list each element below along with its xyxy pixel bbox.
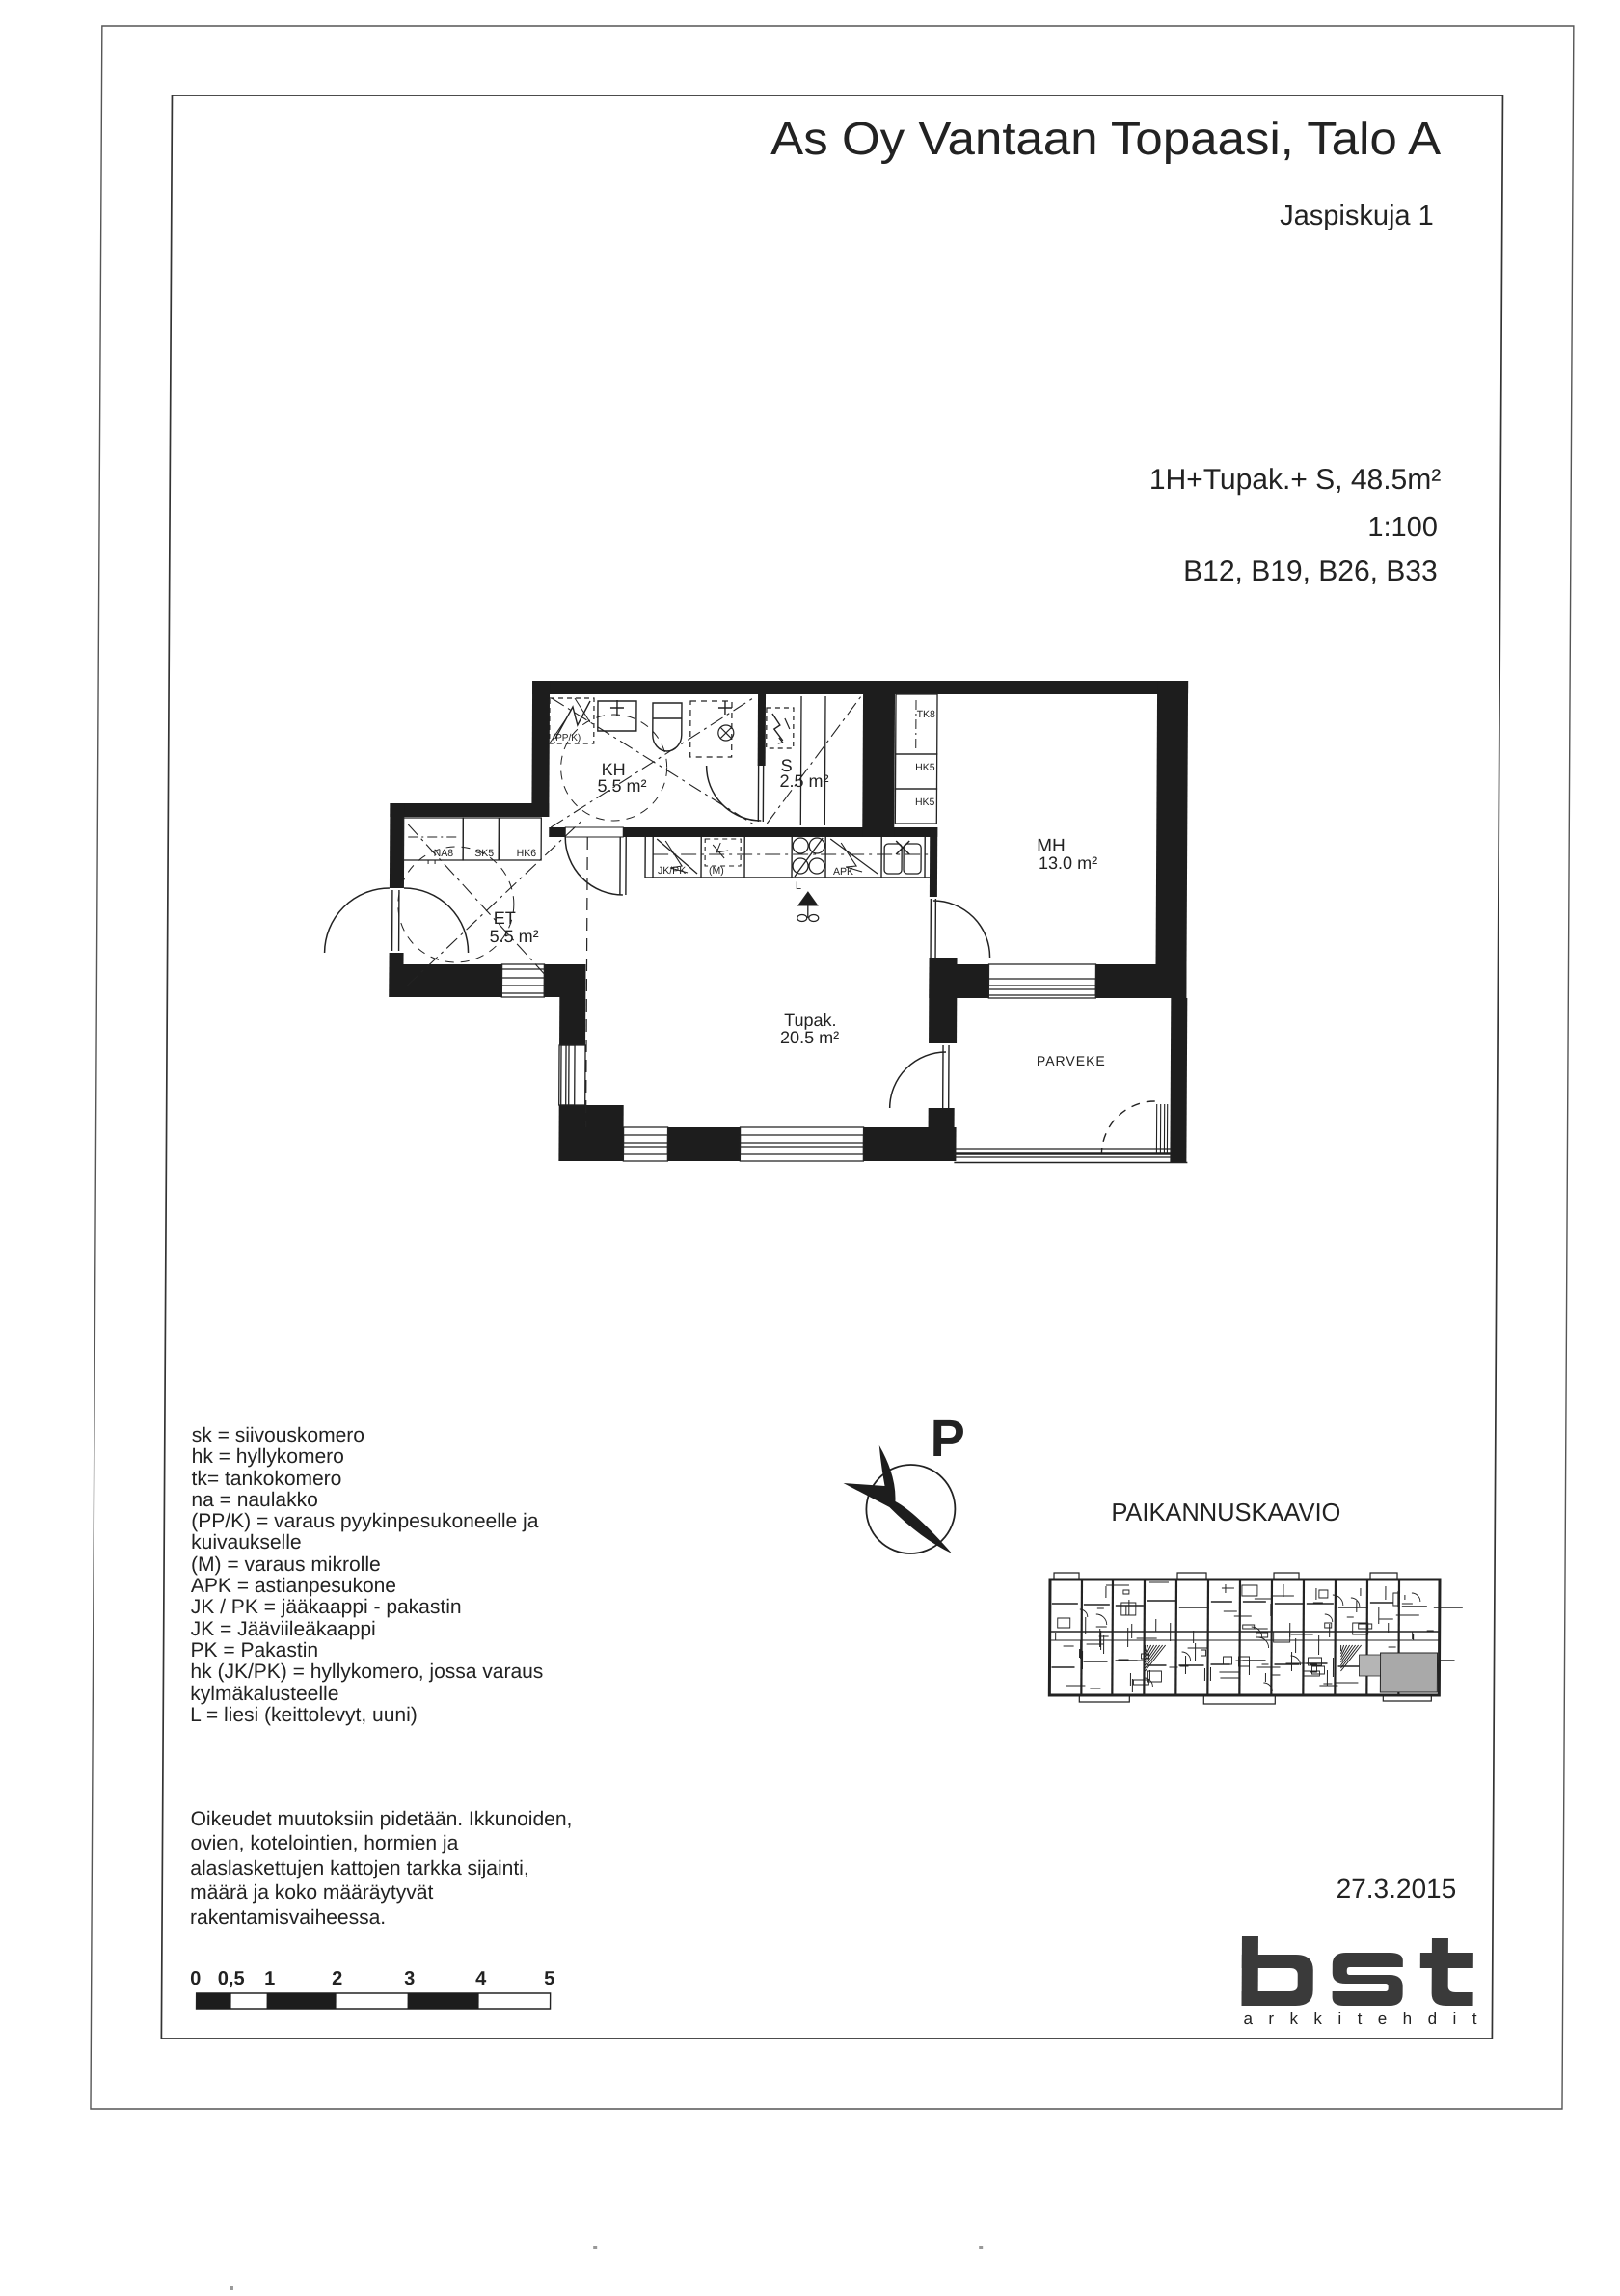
svg-text:4: 4 [475, 1968, 487, 1989]
svg-text:Oikeudet muutoksiin pidetään.: Oikeudet muutoksiin pidetään. Ikkunoiden… [191, 1808, 573, 1830]
svg-text:0: 0 [190, 1968, 201, 1989]
svg-text:Tupak.: Tupak. [784, 1011, 836, 1030]
svg-text:PAIKANNUSKAAVIO: PAIKANNUSKAAVIO [1111, 1498, 1340, 1526]
svg-text:PK = Pakastin: PK = Pakastin [191, 1639, 319, 1661]
svg-text:hk = hyllykomero: hk = hyllykomero [192, 1445, 344, 1468]
svg-text:0,5: 0,5 [218, 1968, 245, 1989]
svg-text:5.5 m²: 5.5 m² [597, 776, 646, 796]
svg-text:NA8: NA8 [434, 848, 454, 859]
svg-text:(M) = varaus mikrolle: (M) = varaus mikrolle [191, 1553, 381, 1576]
svg-text:kylmäkalusteelle: kylmäkalusteelle [190, 1683, 338, 1705]
svg-text:JK = Jääviileäkaappi: JK = Jääviileäkaappi [191, 1618, 376, 1640]
svg-text:L: L [796, 880, 801, 892]
svg-text:HK5: HK5 [915, 762, 935, 773]
svg-text:L = liesi (keittolevyt, uuni): L = liesi (keittolevyt, uuni) [190, 1704, 418, 1726]
svg-text:2: 2 [332, 1968, 342, 1989]
svg-text:na = naulakko: na = naulakko [191, 1489, 317, 1511]
svg-text:tk= tankokomero: tk= tankokomero [192, 1468, 342, 1490]
svg-text:alaslaskettujen kattojen tarkk: alaslaskettujen kattojen tarkka sijainti… [190, 1857, 528, 1879]
svg-text:2.5 m²: 2.5 m² [779, 771, 828, 791]
svg-text:1H+Tupak.+ S, 48.5m²: 1H+Tupak.+ S, 48.5m² [1149, 464, 1442, 496]
svg-text:5: 5 [544, 1968, 554, 1989]
svg-text:3: 3 [404, 1968, 415, 1989]
svg-text:P: P [931, 1410, 965, 1468]
svg-text:PARVEKE: PARVEKE [1037, 1053, 1106, 1068]
svg-text:ovien, kotelointien, hormien j: ovien, kotelointien, hormien ja [190, 1832, 458, 1854]
svg-text:APK: APK [833, 866, 853, 878]
svg-text:määrä ja koko määräytyvät: määrä ja koko määräytyvät [190, 1881, 433, 1904]
svg-text:27.3.2015: 27.3.2015 [1336, 1874, 1457, 1904]
svg-text:arkkitehdit: arkkitehdit [1243, 2010, 1476, 2028]
svg-text:TK8: TK8 [917, 709, 935, 720]
svg-text:(PP/K) = varaus pyykinpesukone: (PP/K) = varaus pyykinpesukoneelle ja [191, 1510, 539, 1532]
svg-text:B12, B19, B26, B33: B12, B19, B26, B33 [1183, 555, 1438, 587]
svg-text:Jaspiskuja 1: Jaspiskuja 1 [1280, 201, 1434, 231]
svg-text:kuivaukselle: kuivaukselle [191, 1531, 302, 1553]
svg-text:20.5 m²: 20.5 m² [780, 1028, 839, 1047]
svg-text:JK/PK: JK/PK [658, 865, 686, 877]
svg-text:rakentamisvaiheessa.: rakentamisvaiheessa. [190, 1906, 386, 1929]
svg-text:(M): (M) [709, 865, 724, 877]
svg-text:5.5 m²: 5.5 m² [490, 927, 539, 946]
svg-text:1: 1 [264, 1968, 275, 1989]
svg-text:13.0 m²: 13.0 m² [1039, 853, 1097, 873]
svg-text:As Oy Vantaan Topaasi, Talo A: As Oy Vantaan Topaasi, Talo A [770, 114, 1441, 165]
svg-text:HK6: HK6 [517, 848, 537, 859]
svg-text:1:100: 1:100 [1367, 512, 1438, 543]
svg-text:hk (JK/PK) = hyllykomero, joss: hk (JK/PK) = hyllykomero, jossa varaus [190, 1661, 543, 1683]
svg-text:JK / PK = jääkaappi - pakastin: JK / PK = jääkaappi - pakastin [191, 1596, 462, 1618]
svg-text:(PP/K): (PP/K) [553, 733, 581, 743]
svg-text:HK5: HK5 [915, 797, 935, 808]
svg-text:ET: ET [494, 908, 516, 928]
svg-text:APK = astianpesukone: APK = astianpesukone [191, 1575, 396, 1597]
svg-text:sk = siivouskomero: sk = siivouskomero [192, 1424, 364, 1446]
